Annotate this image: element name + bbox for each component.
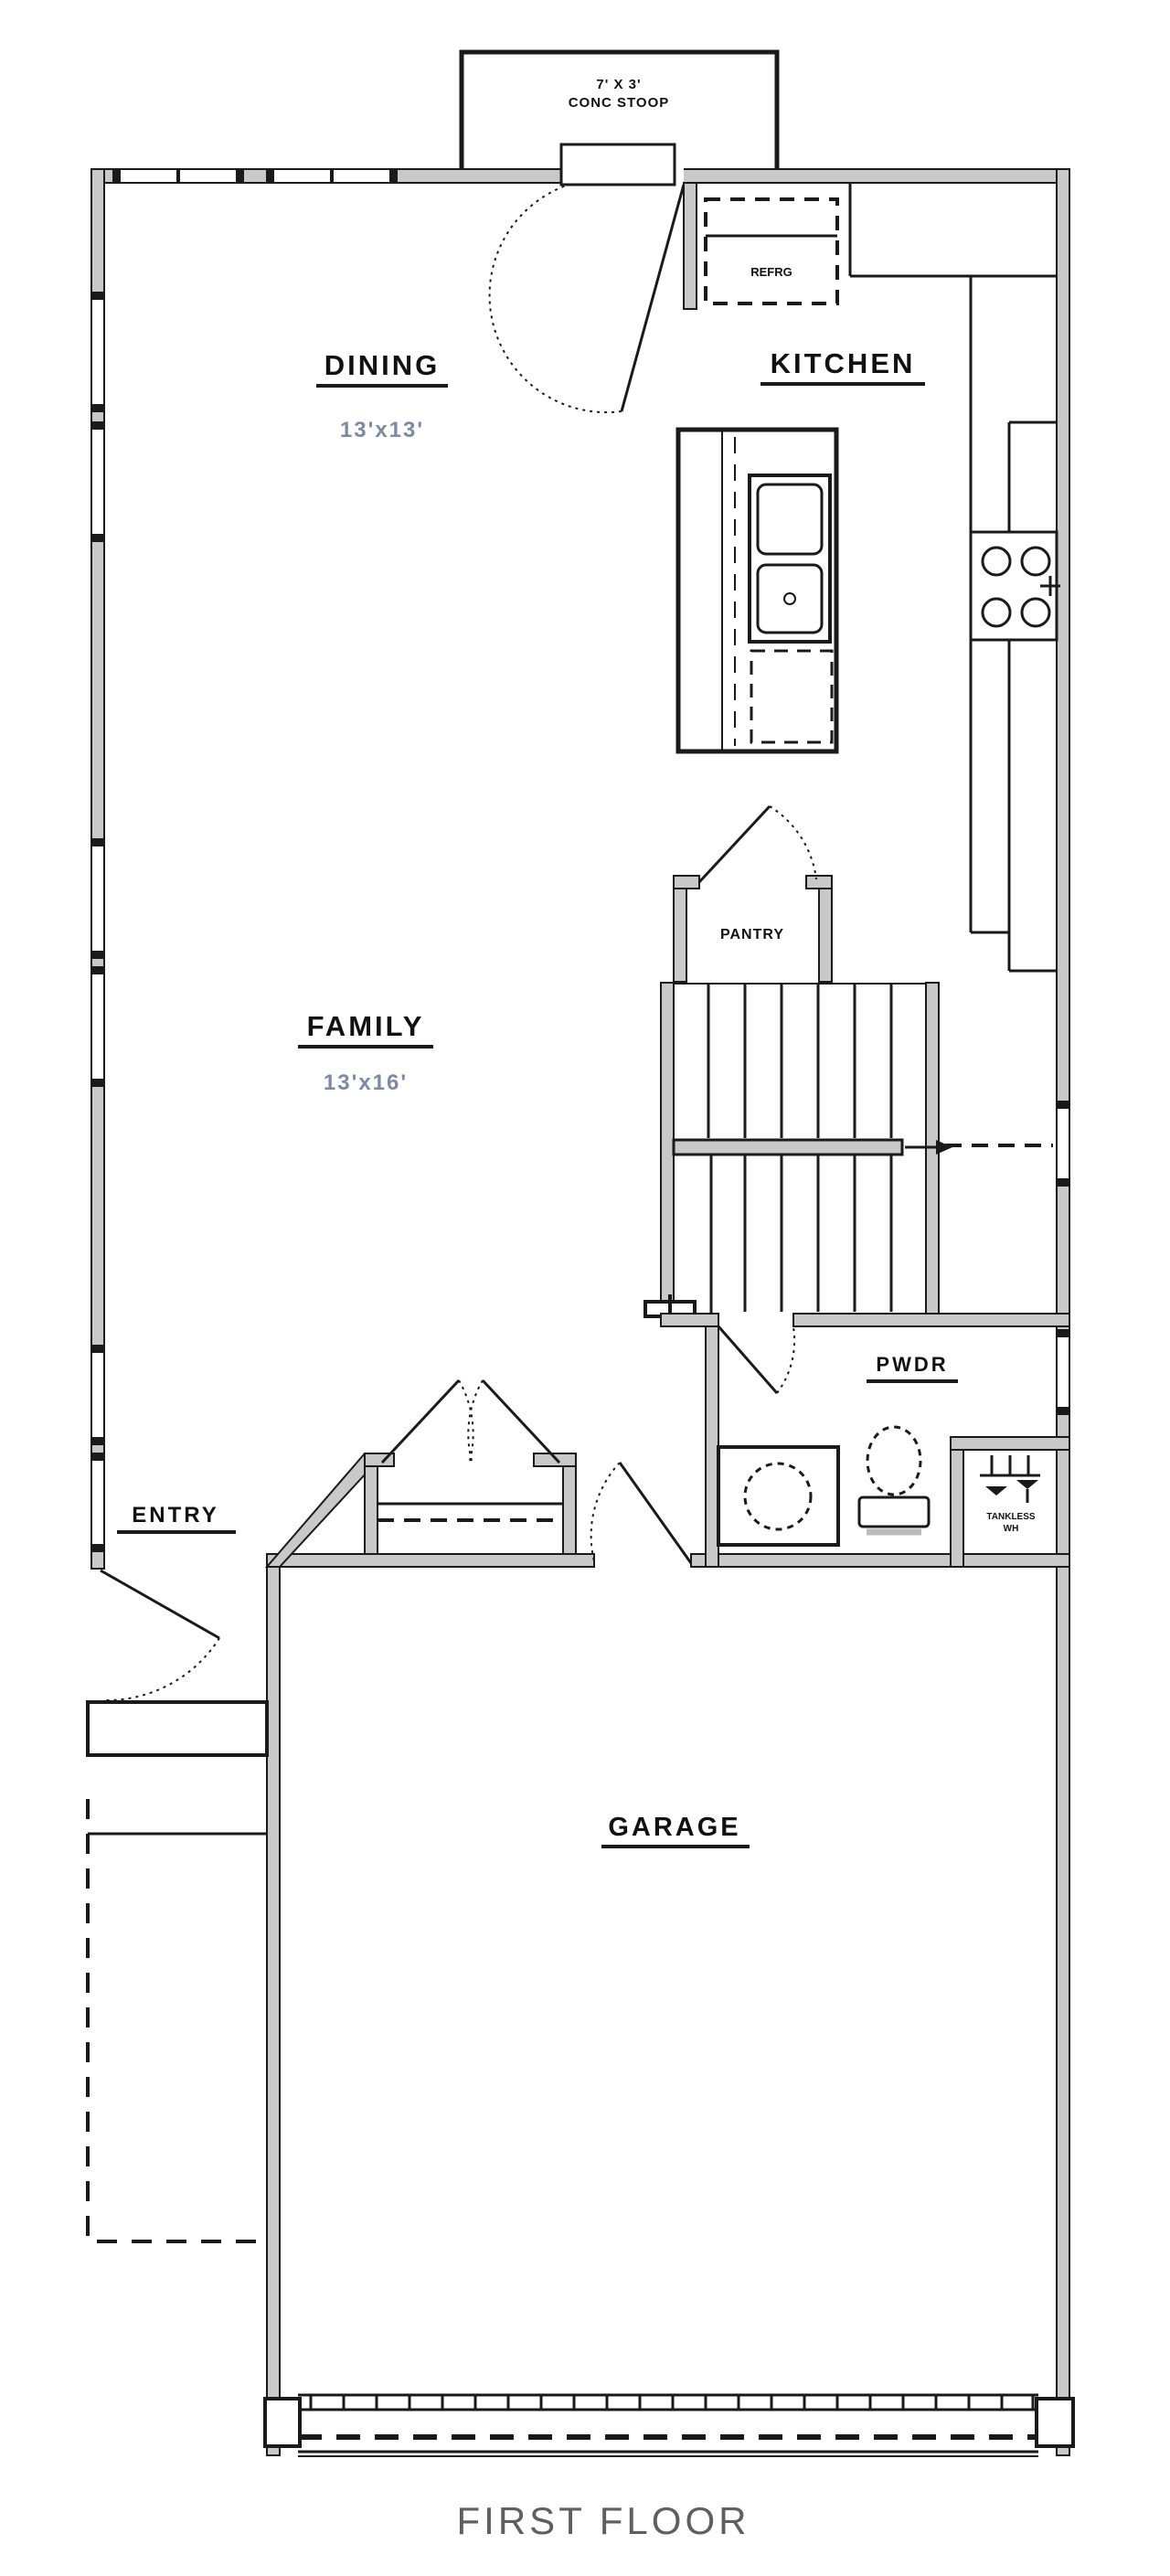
windows (91, 169, 1069, 1551)
refrigerator: REFRG (706, 199, 837, 303)
window-left-4 (91, 967, 104, 1086)
garage-label: GARAGE (608, 1813, 740, 1842)
water-heater-label-line1: TANKLESS (986, 1512, 1035, 1522)
garage-door-jamb-left (265, 2399, 300, 2446)
coat-closet (365, 1380, 576, 1554)
window-left-1 (91, 293, 104, 411)
window-left-5 (91, 1346, 104, 1444)
closet-door-leaf-right (483, 1380, 559, 1463)
entry-door-leaf (101, 1570, 219, 1638)
stair-rail (674, 1140, 952, 1155)
front-door (490, 144, 684, 412)
entry-angled-wall (267, 1453, 378, 1567)
porch-dashed-outline (88, 1799, 267, 2241)
water-heater-label-line2: WH (1004, 1524, 1019, 1534)
front-door-swing (490, 185, 622, 412)
floor-plan-page: 7' X 3' CONC STOOP (0, 0, 1170, 2576)
exterior-walls (91, 169, 1069, 2455)
window-right-1 (1057, 1102, 1069, 1186)
pantry-label: PANTRY (720, 927, 784, 942)
refrigerator-label: REFRG (750, 265, 792, 279)
garage-door-jamb-right (1037, 2399, 1073, 2446)
pantry-door-leaf (699, 806, 770, 882)
pantry-closet (674, 806, 832, 982)
family-label: FAMILY (307, 1010, 425, 1042)
dining-dimension: 13'x13' (340, 418, 424, 442)
front-door-leaf (622, 185, 684, 411)
kitchen-label: KITCHEN (771, 347, 916, 379)
stoop-label-line2: CONC STOOP (569, 95, 670, 111)
tankless-water-heater: TANKLESS WH (980, 1455, 1040, 1534)
dining-label: DINING (324, 349, 441, 381)
window-left-6 (91, 1453, 104, 1551)
window-right-2 (1057, 1330, 1069, 1414)
window-top-1 (113, 169, 243, 183)
entry-label: ENTRY (132, 1503, 218, 1528)
powder-label: PWDR (876, 1353, 948, 1376)
island-sink (750, 475, 830, 642)
entry-threshold (88, 1702, 267, 1755)
kitchen-island (678, 430, 836, 751)
window-left-2 (91, 422, 104, 541)
window-left-3 (91, 839, 104, 958)
stair-treads-lower (711, 1155, 891, 1314)
garage-vehicle-door (265, 2395, 1073, 2456)
stoop-label-line1: 7' X 3' (596, 77, 641, 92)
fridge-alcove-wall (684, 183, 697, 309)
floor-plan-drawing: 7' X 3' CONC STOOP (0, 0, 1170, 2576)
stair-treads-upper (708, 985, 891, 1138)
powder-vanity (718, 1447, 838, 1545)
family-dimension: 13'x16' (324, 1070, 408, 1095)
range-cooktop (971, 532, 1060, 640)
powder-door-leaf (718, 1326, 777, 1393)
powder-door-swing (777, 1327, 794, 1393)
garage-door-ticks (311, 2395, 1033, 2410)
pantry-door-swing (770, 806, 816, 879)
kitchen-area: REFRG (678, 183, 1060, 971)
entry-door-swing (104, 1638, 219, 1700)
water-heater-closet: TANKLESS WH (951, 1437, 1069, 1567)
closet-door-leaf-left (382, 1380, 459, 1463)
garage-door-leaf (620, 1463, 691, 1563)
staircase (645, 983, 1053, 1324)
window-top-2 (267, 169, 397, 183)
garage-door-swing (591, 1463, 620, 1561)
front-door-threshold (561, 144, 675, 185)
entry-door (88, 1570, 267, 1834)
garage-hall-door (591, 1463, 691, 1563)
page-title: FIRST FLOOR (457, 2499, 750, 2542)
toilet (859, 1427, 929, 1532)
